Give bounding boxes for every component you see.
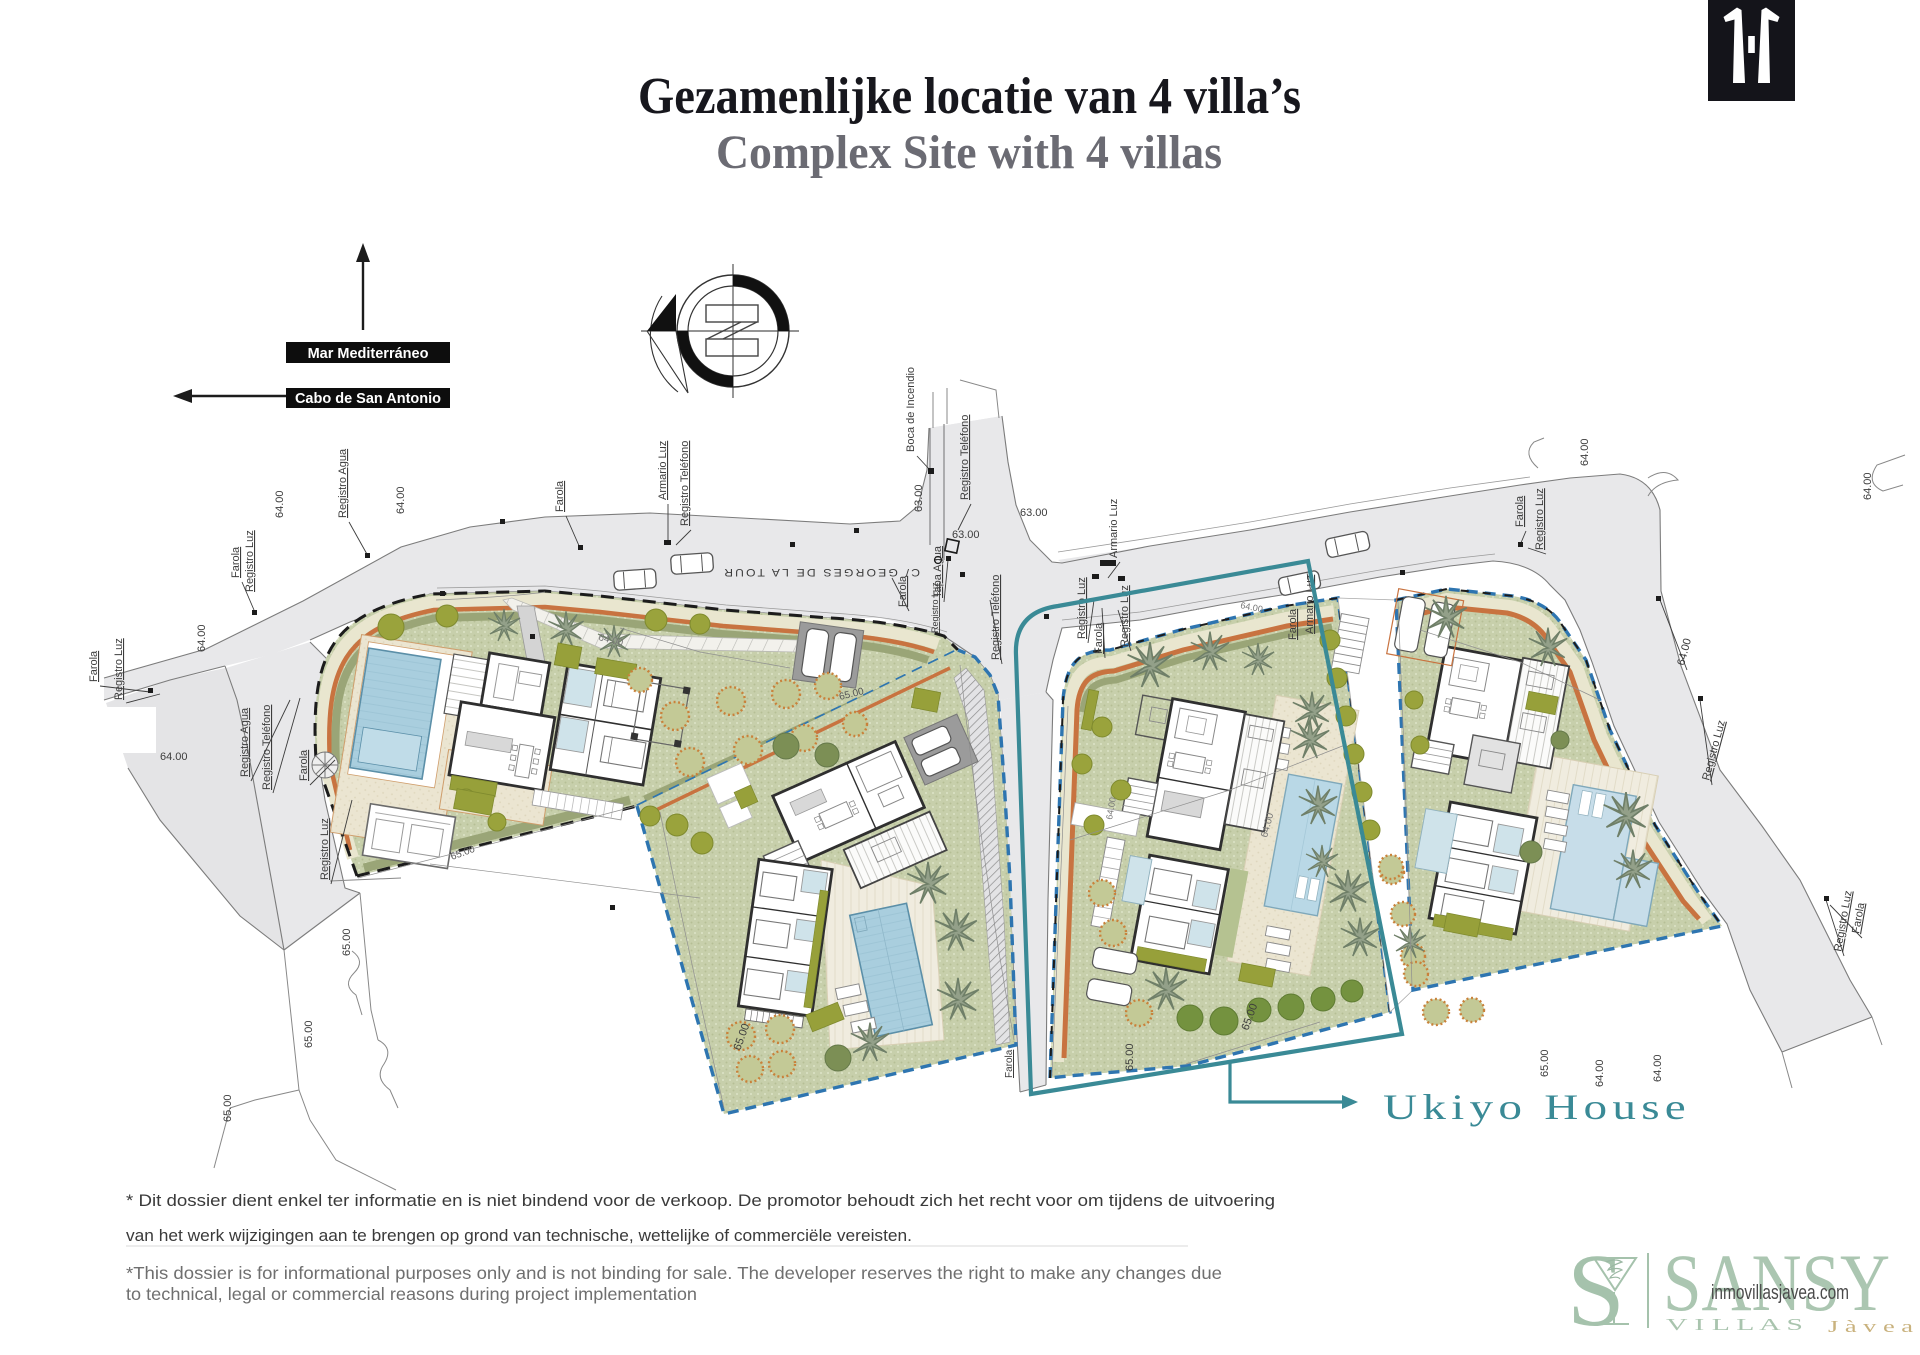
svg-text:S: S bbox=[1567, 1233, 1625, 1348]
svg-text:to technical, legal or commerc: to technical, legal or commercial reason… bbox=[126, 1284, 697, 1304]
svg-text:Registro Luz: Registro Luz bbox=[244, 530, 256, 592]
svg-text:65.00: 65.00 bbox=[222, 1094, 234, 1122]
svg-text:Registro Luz: Registro Luz bbox=[1076, 577, 1088, 639]
svg-text:Registro Luz: Registro Luz bbox=[319, 818, 331, 880]
svg-text:64.00: 64.00 bbox=[1594, 1059, 1606, 1087]
svg-text:64.00: 64.00 bbox=[196, 624, 208, 652]
svg-text:van het werk wijzigingen aan t: van het werk wijzigingen aan te brengen … bbox=[126, 1226, 912, 1245]
svg-text:Farola: Farola bbox=[88, 650, 100, 682]
svg-text:65.00: 65.00 bbox=[1124, 1043, 1136, 1071]
svg-text:64.00: 64.00 bbox=[1652, 1054, 1664, 1082]
svg-text:Registro Luz: Registro Luz bbox=[113, 638, 125, 700]
svg-text:* Dit dossier dient enkel ter: * Dit dossier dient enkel ter informatie… bbox=[126, 1191, 1275, 1210]
svg-text:Ukiyo House: Ukiyo House bbox=[1383, 1087, 1691, 1127]
svg-text:Registro Agua: Registro Agua bbox=[337, 448, 349, 518]
svg-text:Registro Teléfono: Registro Teléfono bbox=[679, 441, 691, 526]
svg-text:Boca de Incendio: Boca de Incendio bbox=[905, 367, 917, 452]
svg-text:63.00: 63.00 bbox=[1020, 507, 1048, 519]
svg-text:Registro Teléfono: Registro Teléfono bbox=[959, 415, 971, 500]
svg-text:Farola: Farola bbox=[554, 480, 566, 512]
svg-text:64.00: 64.00 bbox=[274, 490, 286, 518]
svg-text:inmovillasjavea.com: inmovillasjavea.com bbox=[1711, 1282, 1849, 1304]
svg-text:Cabo de San Antonio: Cabo de San Antonio bbox=[295, 391, 441, 407]
svg-text:Registro Luz: Registro Luz bbox=[930, 582, 940, 633]
svg-text:V I L L A S: V I L L A S bbox=[1666, 1315, 1803, 1334]
svg-text:Registro Luz: Registro Luz bbox=[1534, 488, 1546, 550]
svg-text:65.00: 65.00 bbox=[341, 928, 353, 956]
svg-text:*This dossier is for informati: *This dossier is for informational purpo… bbox=[126, 1263, 1222, 1283]
svg-text:Armario Luz: Armario Luz bbox=[1108, 499, 1120, 558]
svg-text:64.00: 64.00 bbox=[1579, 438, 1591, 466]
svg-text:J à v e a: J à v e a bbox=[1828, 1317, 1914, 1336]
svg-text:64.00: 64.00 bbox=[160, 751, 188, 763]
svg-text:65.00: 65.00 bbox=[303, 1020, 315, 1048]
svg-text:63.00: 63.00 bbox=[952, 529, 980, 541]
svg-text:Farola: Farola bbox=[1287, 608, 1299, 640]
svg-text:Farola: Farola bbox=[1004, 1049, 1015, 1078]
svg-text:65.00: 65.00 bbox=[1539, 1049, 1551, 1077]
svg-text:Farola: Farola bbox=[230, 546, 242, 578]
svg-text:Complex Site with 4 villas: Complex Site with 4 villas bbox=[716, 126, 1222, 179]
svg-text:Farola: Farola bbox=[298, 749, 310, 781]
svg-text:63.00: 63.00 bbox=[913, 484, 925, 512]
svg-text:Registro Agua: Registro Agua bbox=[239, 707, 251, 777]
svg-text:Registro Teléfono: Registro Teléfono bbox=[990, 575, 1002, 660]
svg-text:64.00: 64.00 bbox=[1862, 472, 1874, 500]
svg-text:C/ GEORGES DE LA TOUR: C/ GEORGES DE LA TOUR bbox=[722, 566, 920, 578]
svg-text:64.00: 64.00 bbox=[395, 486, 407, 514]
svg-text:Farola: Farola bbox=[1514, 495, 1526, 527]
svg-text:Gezamenlijke locatie van 4 vil: Gezamenlijke locatie van 4 villa’s bbox=[638, 68, 1301, 125]
svg-text:Armario Luz: Armario Luz bbox=[657, 441, 669, 500]
svg-text:Mar Mediterráneo: Mar Mediterráneo bbox=[308, 346, 429, 362]
